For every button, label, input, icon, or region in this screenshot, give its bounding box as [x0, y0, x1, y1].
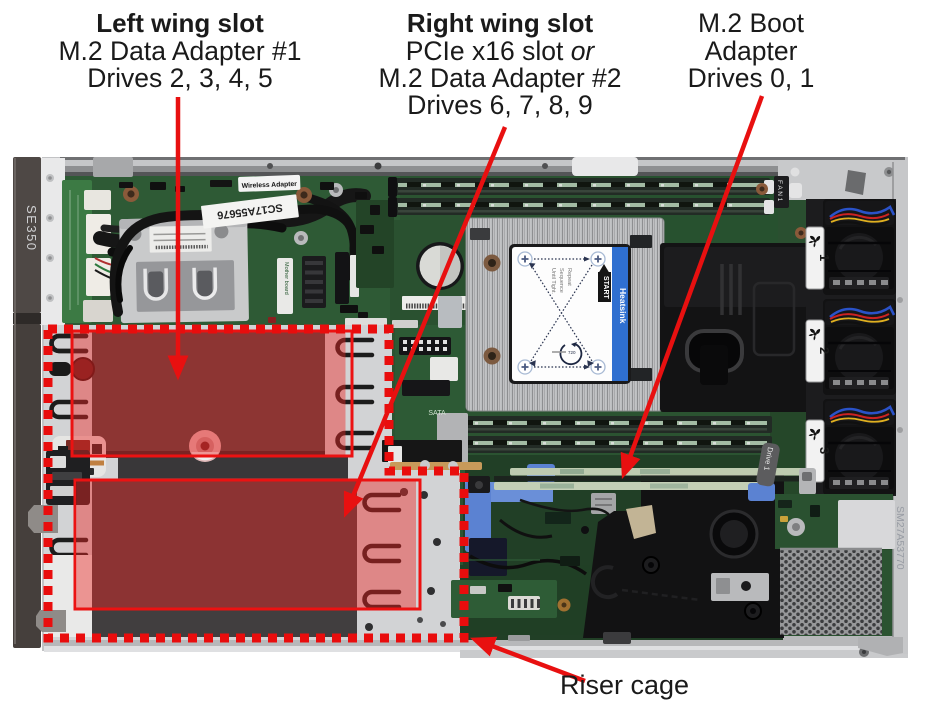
svg-text:720: 720 [568, 350, 576, 355]
svg-text:Repeat: Repeat [566, 268, 572, 286]
svg-text:SE350: SE350 [24, 205, 39, 252]
svg-text:Riser cage: Riser cage [560, 670, 689, 700]
svg-text:Drives 0, 1: Drives 0, 1 [688, 63, 815, 93]
svg-text:F A N 1: F A N 1 [776, 180, 783, 202]
svg-text:1: 1 [817, 254, 832, 261]
svg-text:START: START [602, 276, 609, 300]
svg-text:Until Tight.: Until Tight. [550, 268, 556, 294]
svg-text:Drives 6, 7, 8, 9: Drives 6, 7, 8, 9 [407, 90, 593, 120]
svg-text:Sequence: Sequence [558, 268, 564, 293]
svg-text:Drives 2, 3, 4, 5: Drives 2, 3, 4, 5 [87, 63, 273, 93]
svg-text:Mother board: Mother board [283, 262, 289, 295]
svg-text:Heatsink: Heatsink [618, 288, 628, 324]
svg-text:Right wing slot: Right wing slot [407, 8, 594, 38]
svg-text:M.2 Data Adapter #2: M.2 Data Adapter #2 [378, 63, 621, 93]
svg-text:Left wing slot: Left wing slot [96, 8, 264, 38]
svg-text:Adapter: Adapter [705, 36, 798, 66]
svg-text:SATA: SATA [428, 410, 446, 417]
svg-text:M.2 Data Adapter #1: M.2 Data Adapter #1 [58, 36, 301, 66]
svg-text:2: 2 [817, 347, 832, 354]
svg-text:3: 3 [817, 447, 832, 454]
svg-text:SM27A53770: SM27A53770 [894, 506, 906, 570]
svg-text:M.2 Boot: M.2 Boot [698, 8, 805, 38]
svg-text:PCIe x16 slot or: PCIe x16 slot or [406, 36, 596, 66]
